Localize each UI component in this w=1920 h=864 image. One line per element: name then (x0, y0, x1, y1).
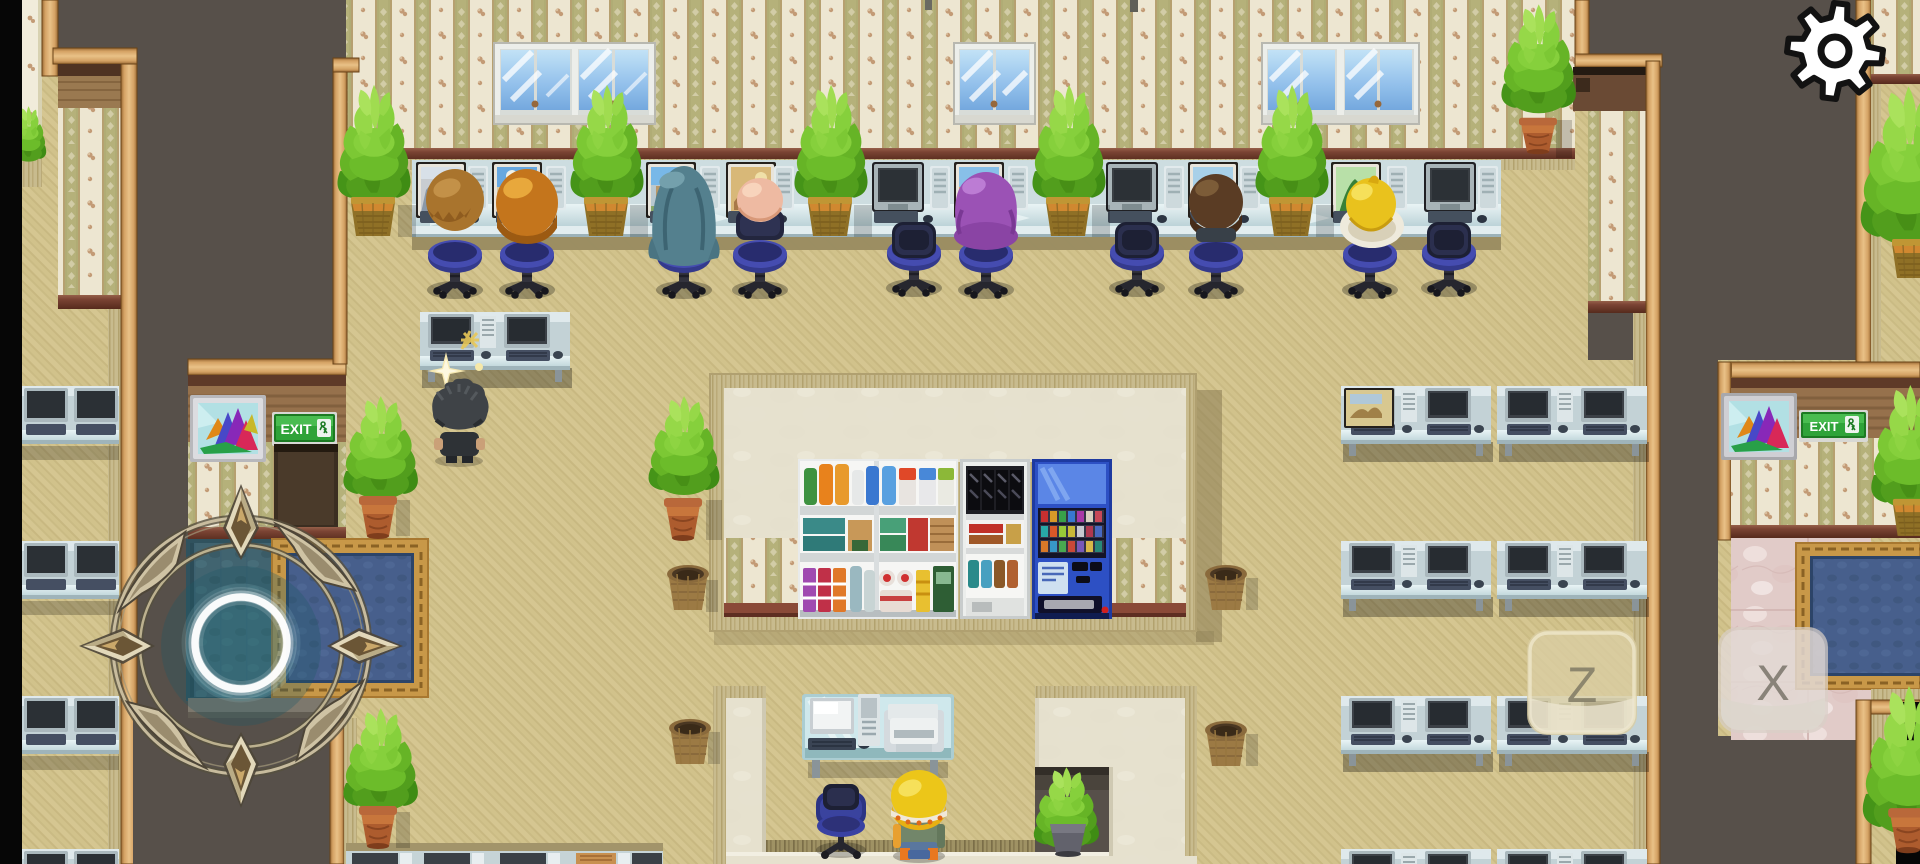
svg-text:Z: Z (1567, 657, 1598, 713)
svg-text:EXIT: EXIT (280, 421, 312, 437)
svg-text:EXIT: EXIT (1810, 419, 1839, 434)
svg-text:X: X (1756, 655, 1789, 711)
